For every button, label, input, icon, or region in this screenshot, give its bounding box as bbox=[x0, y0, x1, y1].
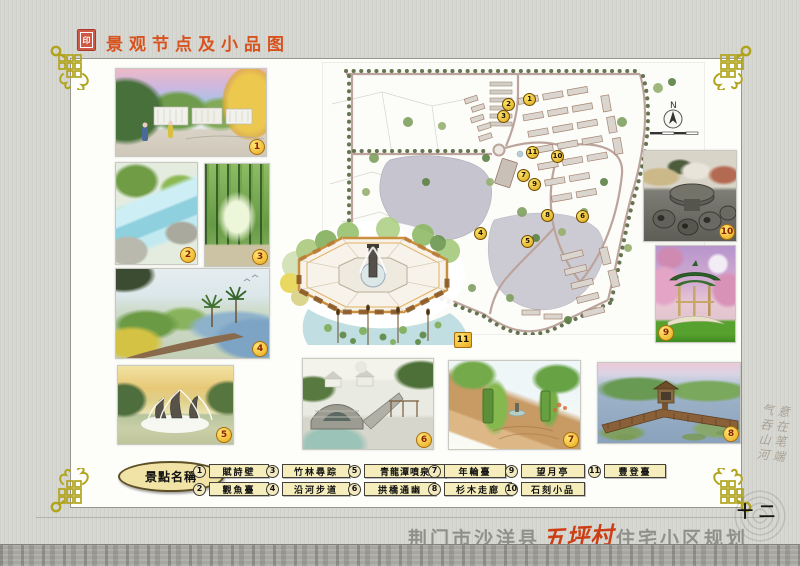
stone-base bbox=[668, 316, 724, 326]
legend-item-11: 11 豐登臺 bbox=[588, 464, 666, 478]
legend-num-3: 3 bbox=[266, 465, 279, 478]
legend-item-3: 3 竹林尋踪 bbox=[266, 464, 350, 478]
pier-pavilion bbox=[654, 381, 678, 403]
photo-11-harvest-terrace: 11 bbox=[278, 213, 473, 349]
photo-8-badge: 8 bbox=[723, 426, 739, 442]
photo-2-badge: 2 bbox=[180, 247, 196, 263]
page-number: 十二 bbox=[736, 498, 782, 522]
map-node-5: 5 bbox=[521, 235, 534, 248]
legend-num-2: 2 bbox=[193, 483, 206, 496]
palm-trees bbox=[202, 287, 246, 327]
legend-num-6: 6 bbox=[348, 483, 361, 496]
legend-label-1: 賦詩壁 bbox=[209, 464, 269, 478]
legend-item-6: 6 拱橋通幽 bbox=[348, 482, 436, 496]
legend-item-4: 4 沿河步道 bbox=[266, 482, 350, 496]
photo-1-badge: 1 bbox=[249, 139, 265, 155]
scale-bar bbox=[650, 132, 698, 134]
legend-num-8: 8 bbox=[428, 483, 441, 496]
photo-5-qinglong-fountain: 5 bbox=[117, 365, 234, 445]
legend-label-4: 沿河步道 bbox=[282, 482, 350, 496]
page-title: 景观节点及小品图 bbox=[106, 30, 290, 55]
corner-knot-top-right bbox=[706, 44, 752, 90]
legend-label-3: 竹林尋踪 bbox=[282, 464, 350, 478]
legend-label-6: 拱橋通幽 bbox=[364, 482, 436, 496]
map-node-3: 3 bbox=[497, 110, 510, 123]
legend-num-7: 7 bbox=[428, 465, 441, 478]
legend-label-10: 石刻小品 bbox=[521, 482, 585, 496]
photo-4-badge: 4 bbox=[252, 341, 268, 357]
photo-6-arch-bridge: 6 bbox=[302, 358, 434, 450]
map-node-4: 4 bbox=[474, 227, 487, 240]
photo-1-poetry-wall: 1 bbox=[115, 68, 267, 157]
photo-3-badge: 3 bbox=[252, 249, 268, 265]
village-houses bbox=[323, 361, 375, 387]
octagon-platform bbox=[299, 238, 447, 312]
walkway-path bbox=[126, 333, 244, 358]
lotus-patches bbox=[616, 431, 732, 441]
photo-10-badge: 10 bbox=[719, 224, 735, 240]
central-fountain bbox=[509, 403, 525, 416]
photo-9-badge: 9 bbox=[658, 325, 674, 341]
photo-11-badge: 11 bbox=[454, 332, 472, 348]
roundabout bbox=[494, 145, 505, 156]
legend-num-5: 5 bbox=[348, 465, 361, 478]
legend-item-7: 7 年輪臺 bbox=[428, 464, 506, 478]
photo-8-lake-boardwalk: 8 bbox=[597, 362, 741, 444]
photo-4-riverside-walkway: 4 bbox=[115, 268, 270, 359]
birds bbox=[244, 275, 258, 281]
legend-num-1: 1 bbox=[193, 465, 206, 478]
legend-label-7: 年輪臺 bbox=[444, 464, 506, 478]
map-node-10: 10 bbox=[551, 150, 564, 163]
legend-item-10: 10 石刻小品 bbox=[505, 482, 585, 496]
legend-label-2: 觀魚臺 bbox=[209, 482, 269, 496]
legend-label-8: 杉木走廊 bbox=[444, 482, 512, 496]
pavilion bbox=[670, 260, 720, 316]
photo-2-fish-viewing-stream: 2 bbox=[115, 162, 198, 265]
legend-num-11: 11 bbox=[588, 465, 601, 478]
legend-num-4: 4 bbox=[266, 483, 279, 496]
legend-item-1: 1 賦詩壁 bbox=[193, 464, 269, 478]
legend-num-10: 10 bbox=[505, 483, 518, 496]
map-node-9: 9 bbox=[528, 178, 541, 191]
presentation-board: 印 景观节点及小品图 bbox=[0, 0, 800, 566]
map-node-1: 1 bbox=[523, 93, 536, 106]
north-label: N bbox=[670, 101, 677, 111]
flower-bed bbox=[553, 403, 567, 412]
corner-knot-bottom-left bbox=[50, 468, 96, 514]
photo-7-annual-ring-terrace: 7 bbox=[448, 360, 581, 450]
legend-item-2: 2 觀魚臺 bbox=[193, 482, 269, 496]
photo-9-moon-pavilion: 9 bbox=[655, 245, 736, 343]
legend-num-9: 9 bbox=[505, 465, 518, 478]
legend-label-9: 望月亭 bbox=[521, 464, 585, 478]
legend-label-11: 豐登臺 bbox=[604, 464, 666, 478]
bottom-carved-band bbox=[0, 544, 800, 566]
photo-7-badge: 7 bbox=[563, 432, 579, 448]
photo-6-badge: 6 bbox=[416, 432, 432, 448]
photo-3-bamboo-trail: 3 bbox=[204, 163, 270, 267]
photo-10-stone-carving: 10 bbox=[643, 150, 737, 242]
map-node-11: 11 bbox=[526, 146, 539, 159]
photo-5-badge: 5 bbox=[216, 427, 232, 443]
legend-item-9: 9 望月亭 bbox=[505, 464, 585, 478]
map-node-6: 6 bbox=[576, 210, 589, 223]
legend-item-8: 8 杉木走廊 bbox=[428, 482, 512, 496]
stone-bridge bbox=[311, 393, 403, 429]
corner-knot-top-left bbox=[50, 44, 96, 90]
map-node-8: 8 bbox=[541, 209, 554, 222]
